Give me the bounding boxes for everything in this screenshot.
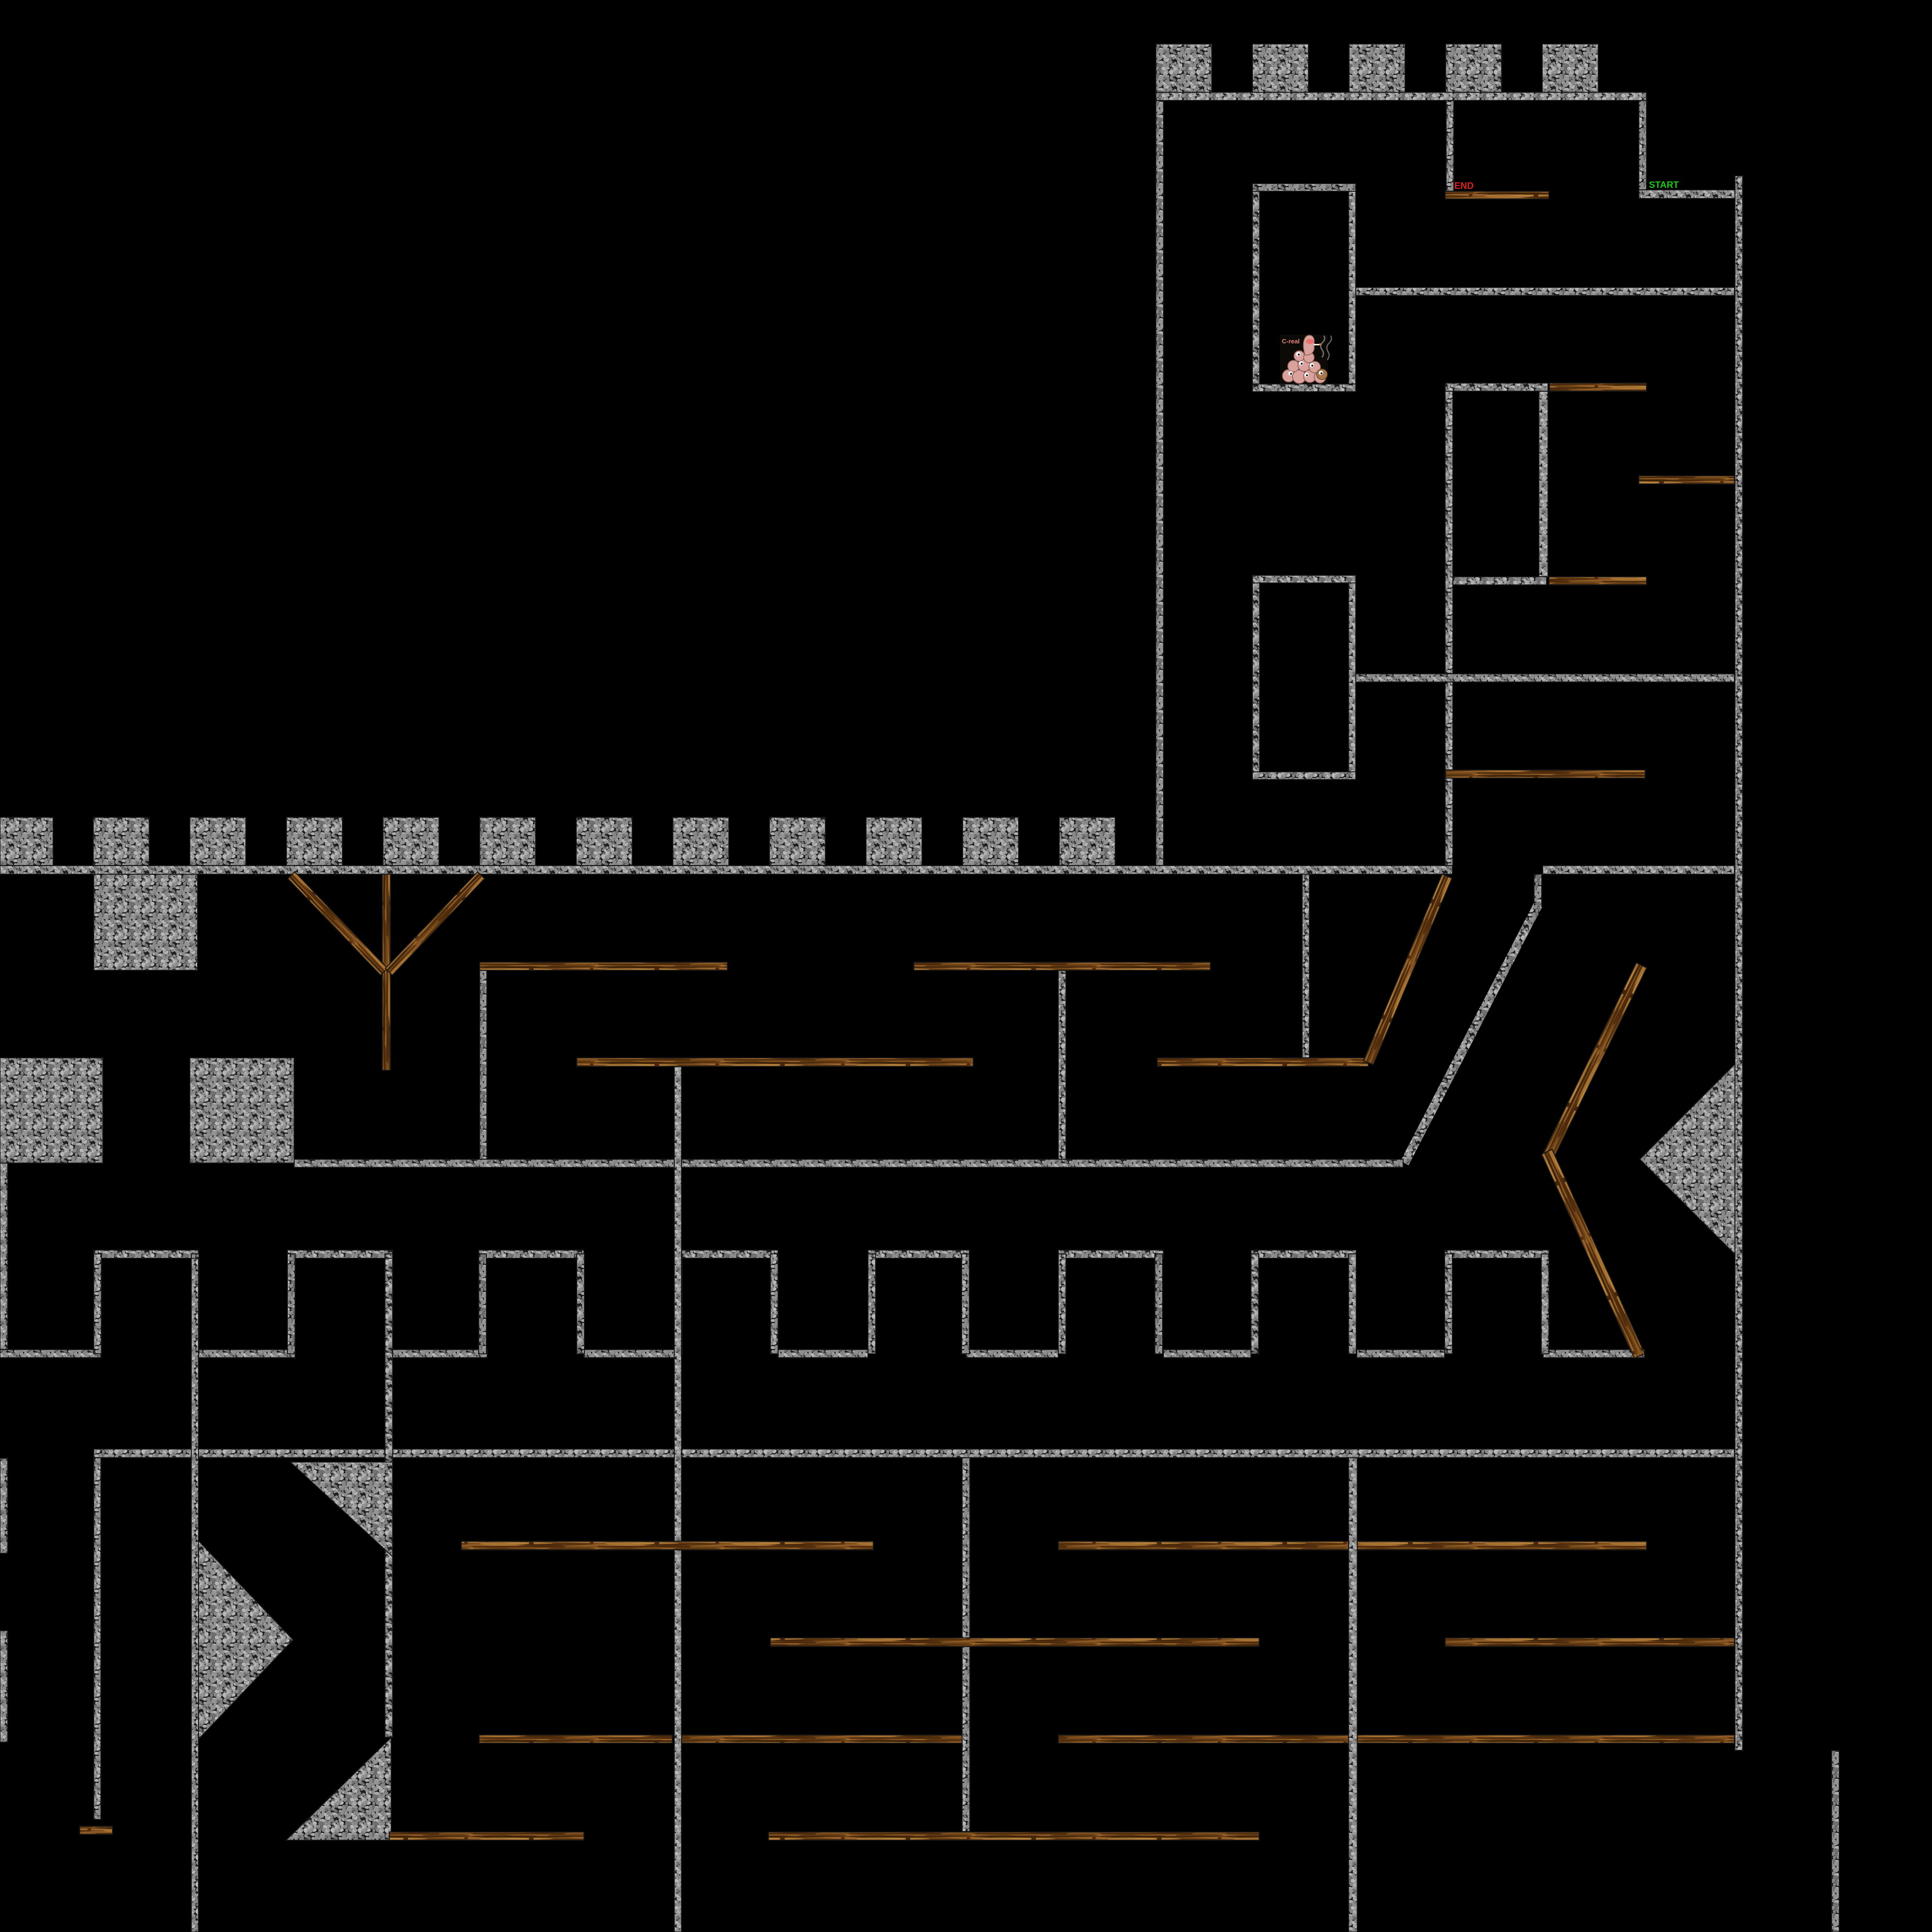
svg-text:END: END bbox=[1454, 181, 1474, 191]
svg-text:C-real: C-real bbox=[1282, 338, 1300, 345]
svg-text:START: START bbox=[1649, 180, 1679, 190]
